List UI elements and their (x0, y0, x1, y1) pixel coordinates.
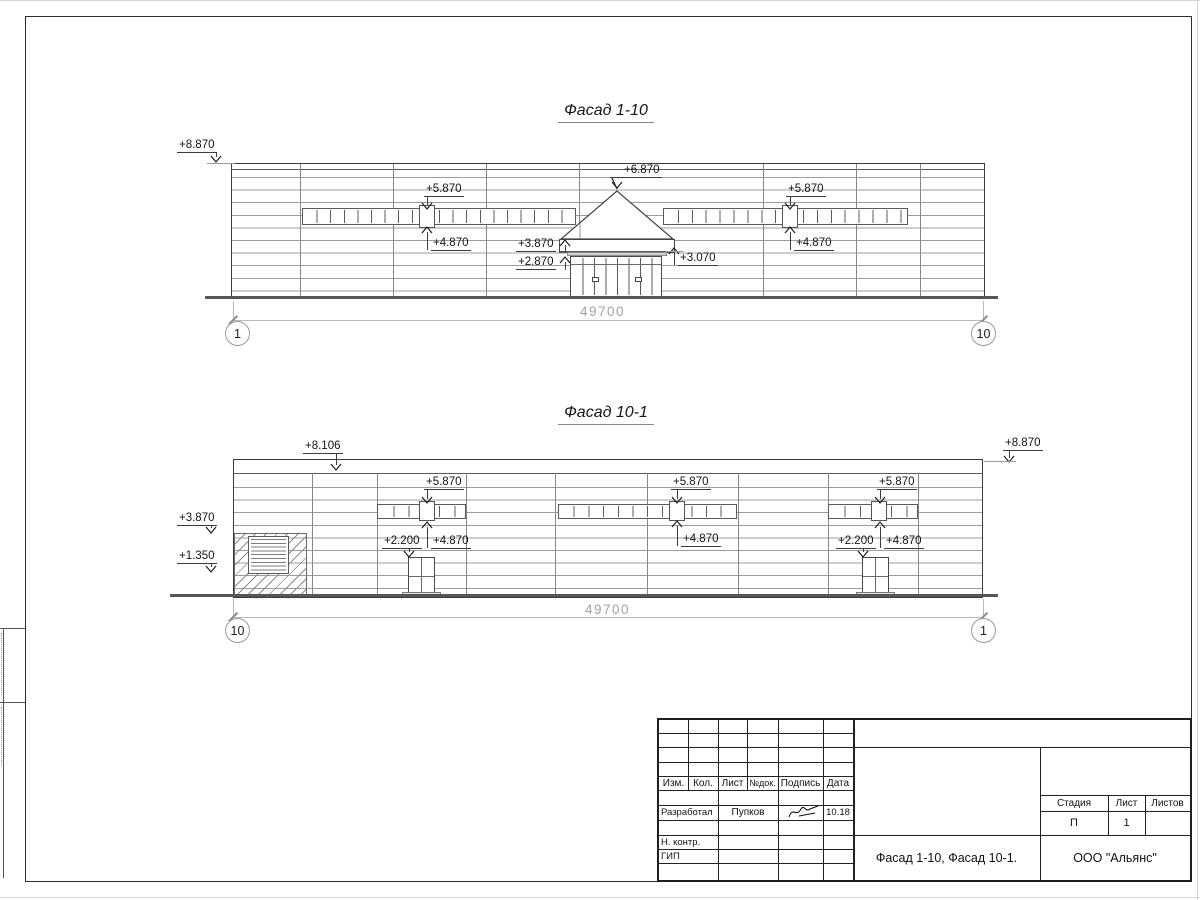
grid-line (659, 733, 853, 734)
developed-name: Пупков (718, 805, 778, 820)
door-handle (592, 277, 599, 282)
ground-line (170, 594, 998, 597)
service-door-left (408, 557, 435, 595)
developed-date: 10.18 (823, 805, 853, 820)
louver-slats (251, 539, 286, 571)
col-header-izm: Изм. (659, 776, 688, 790)
grid-line (778, 720, 779, 880)
dimension-text: 49700 (585, 602, 630, 617)
row-label-gip: ГИП (661, 849, 721, 863)
sheet-label: Лист (1108, 795, 1145, 811)
window-strip-2 (558, 504, 737, 519)
grid-line (823, 720, 824, 880)
stage-label: Стадия (1040, 795, 1108, 811)
axis-bubble-10: 10 (971, 321, 996, 346)
col-header-data: Дата (823, 776, 853, 790)
axis-bubble-10: 10 (225, 618, 250, 643)
facade2-title: Фасад 10-1 (516, 404, 696, 422)
axis-bubble-1: 1 (225, 321, 250, 346)
stage-value: П (1040, 811, 1108, 835)
ground-line (205, 296, 998, 299)
entrance-doors (570, 256, 662, 297)
wall-joint (377, 473, 378, 597)
door-transom (571, 264, 661, 265)
grid-line (659, 762, 853, 763)
axis-bubble-1: 1 (971, 618, 996, 643)
grid-line (659, 863, 853, 864)
grid-line (659, 790, 853, 791)
vent-window (419, 501, 435, 521)
window-mullions (560, 506, 735, 517)
wall-joint (738, 473, 739, 597)
document-title: Фасад 1-10, Фасад 10-1. (853, 835, 1040, 880)
grid-line (659, 820, 853, 821)
dock-louver-gate (248, 536, 289, 574)
drawing-sheet: Фасад 1-10 497 (0, 0, 1200, 900)
sheets-label: Листов (1145, 795, 1190, 811)
window-mullions (304, 210, 574, 223)
wall-joint (647, 473, 648, 597)
signature (785, 803, 821, 821)
entrance-canopy (559, 239, 675, 253)
wall-joint (828, 473, 829, 597)
entrance-pediment (558, 187, 676, 241)
col-header-ndok: №док. (747, 776, 778, 790)
parapet-line (233, 473, 983, 474)
dimension-line (233, 617, 983, 618)
door-rail (863, 576, 888, 577)
col-header-list: Лист (718, 776, 747, 790)
col-header-podpis: Подпись (778, 776, 823, 790)
col-header-kol: Кол. (688, 776, 718, 790)
vent-window (871, 501, 887, 521)
door-handle (635, 277, 642, 282)
window-strip-left (302, 208, 576, 225)
vent-window (669, 501, 685, 521)
wall-joint (555, 473, 556, 597)
service-door-right (862, 557, 889, 595)
company-name: ООО "Альянс" (1040, 835, 1190, 880)
row-label-developed: Разработал (661, 805, 718, 820)
title-block: Изм. Кол. Лист №док. Подпись Дата Разраб… (657, 718, 1192, 882)
sheet-value: 1 (1108, 811, 1145, 835)
wall-joint (312, 473, 313, 597)
door-rail (409, 576, 434, 577)
row-label-ncontr: Н. контр. (661, 835, 721, 849)
grid-line (659, 747, 1190, 748)
